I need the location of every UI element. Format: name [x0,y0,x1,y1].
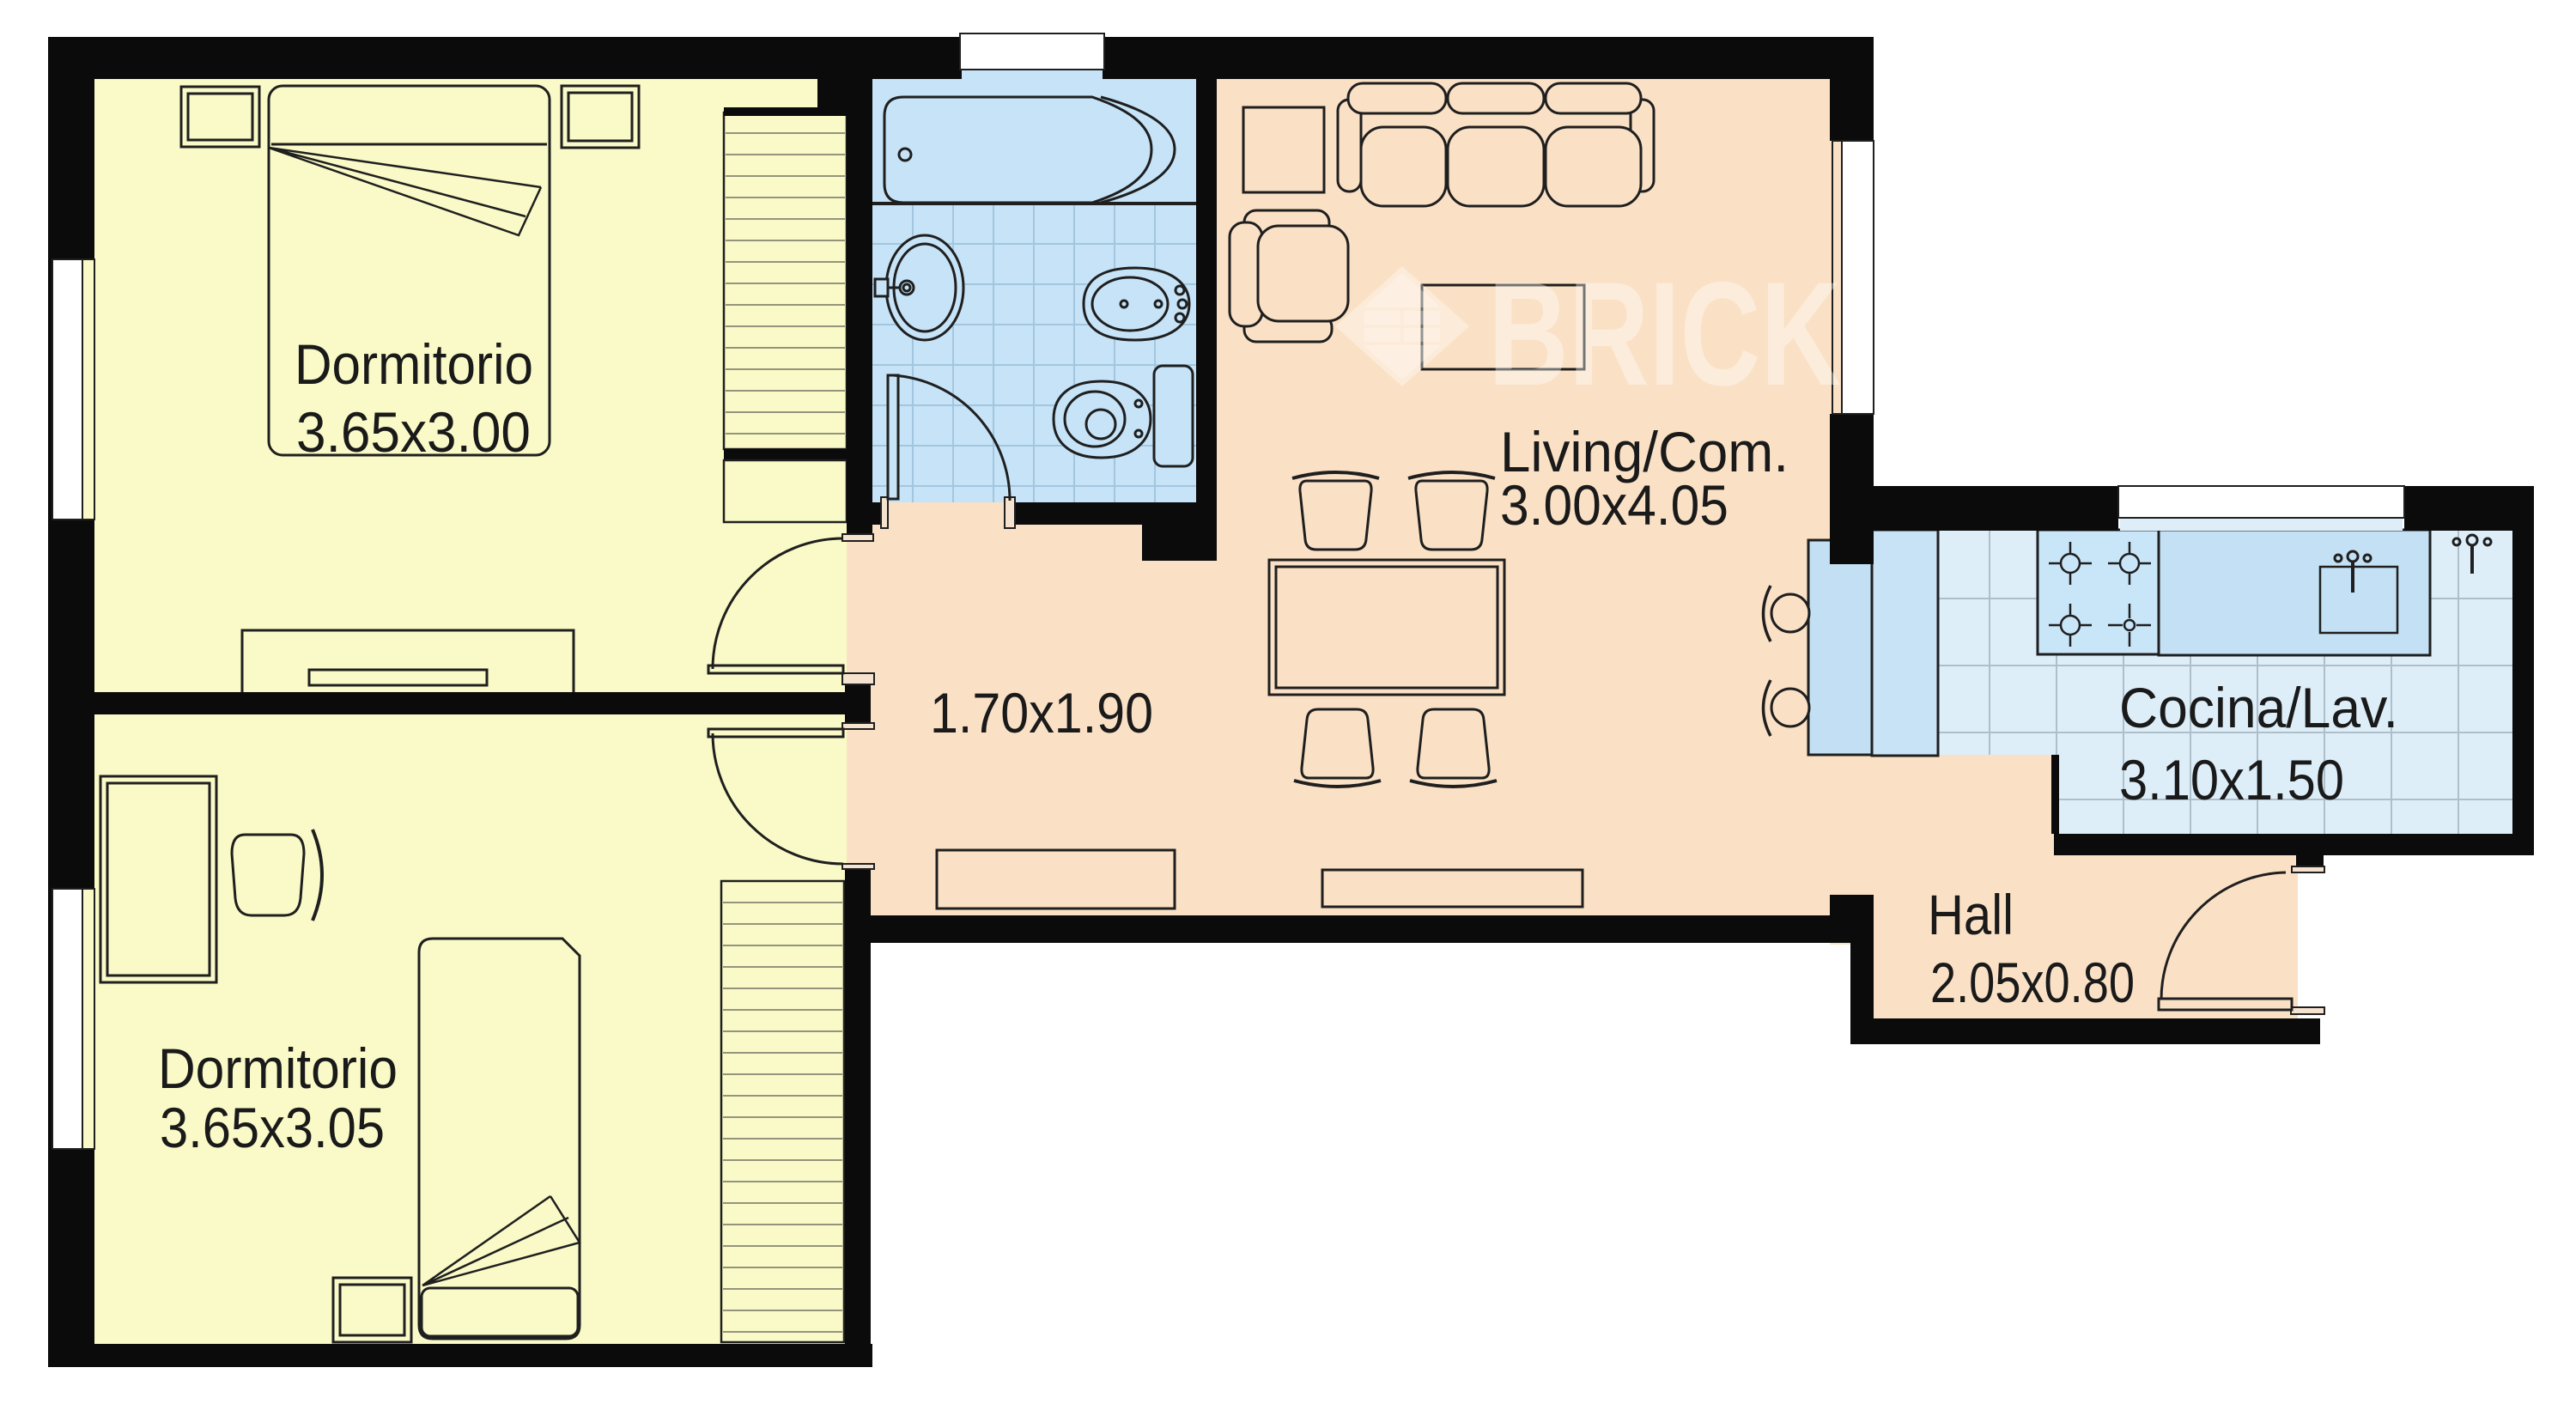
svg-text:Cocina/Lav.: Cocina/Lav. [2119,676,2398,739]
svg-text:BRICK: BRICK [1488,252,1841,416]
svg-text:3.00x4.05: 3.00x4.05 [1500,473,1728,537]
svg-text:Dormitorio: Dormitorio [295,332,533,396]
svg-text:3.65x3.00: 3.65x3.00 [296,400,531,464]
svg-text:3.10x1.50: 3.10x1.50 [2119,748,2344,811]
svg-text:Hall: Hall [1928,883,2014,946]
svg-text:Dormitorio: Dormitorio [158,1036,398,1100]
svg-text:1.70x1.90: 1.70x1.90 [930,681,1153,745]
svg-text:2.05x0.80: 2.05x0.80 [1930,951,2135,1014]
svg-text:3.65x3.05: 3.65x3.05 [160,1096,385,1159]
